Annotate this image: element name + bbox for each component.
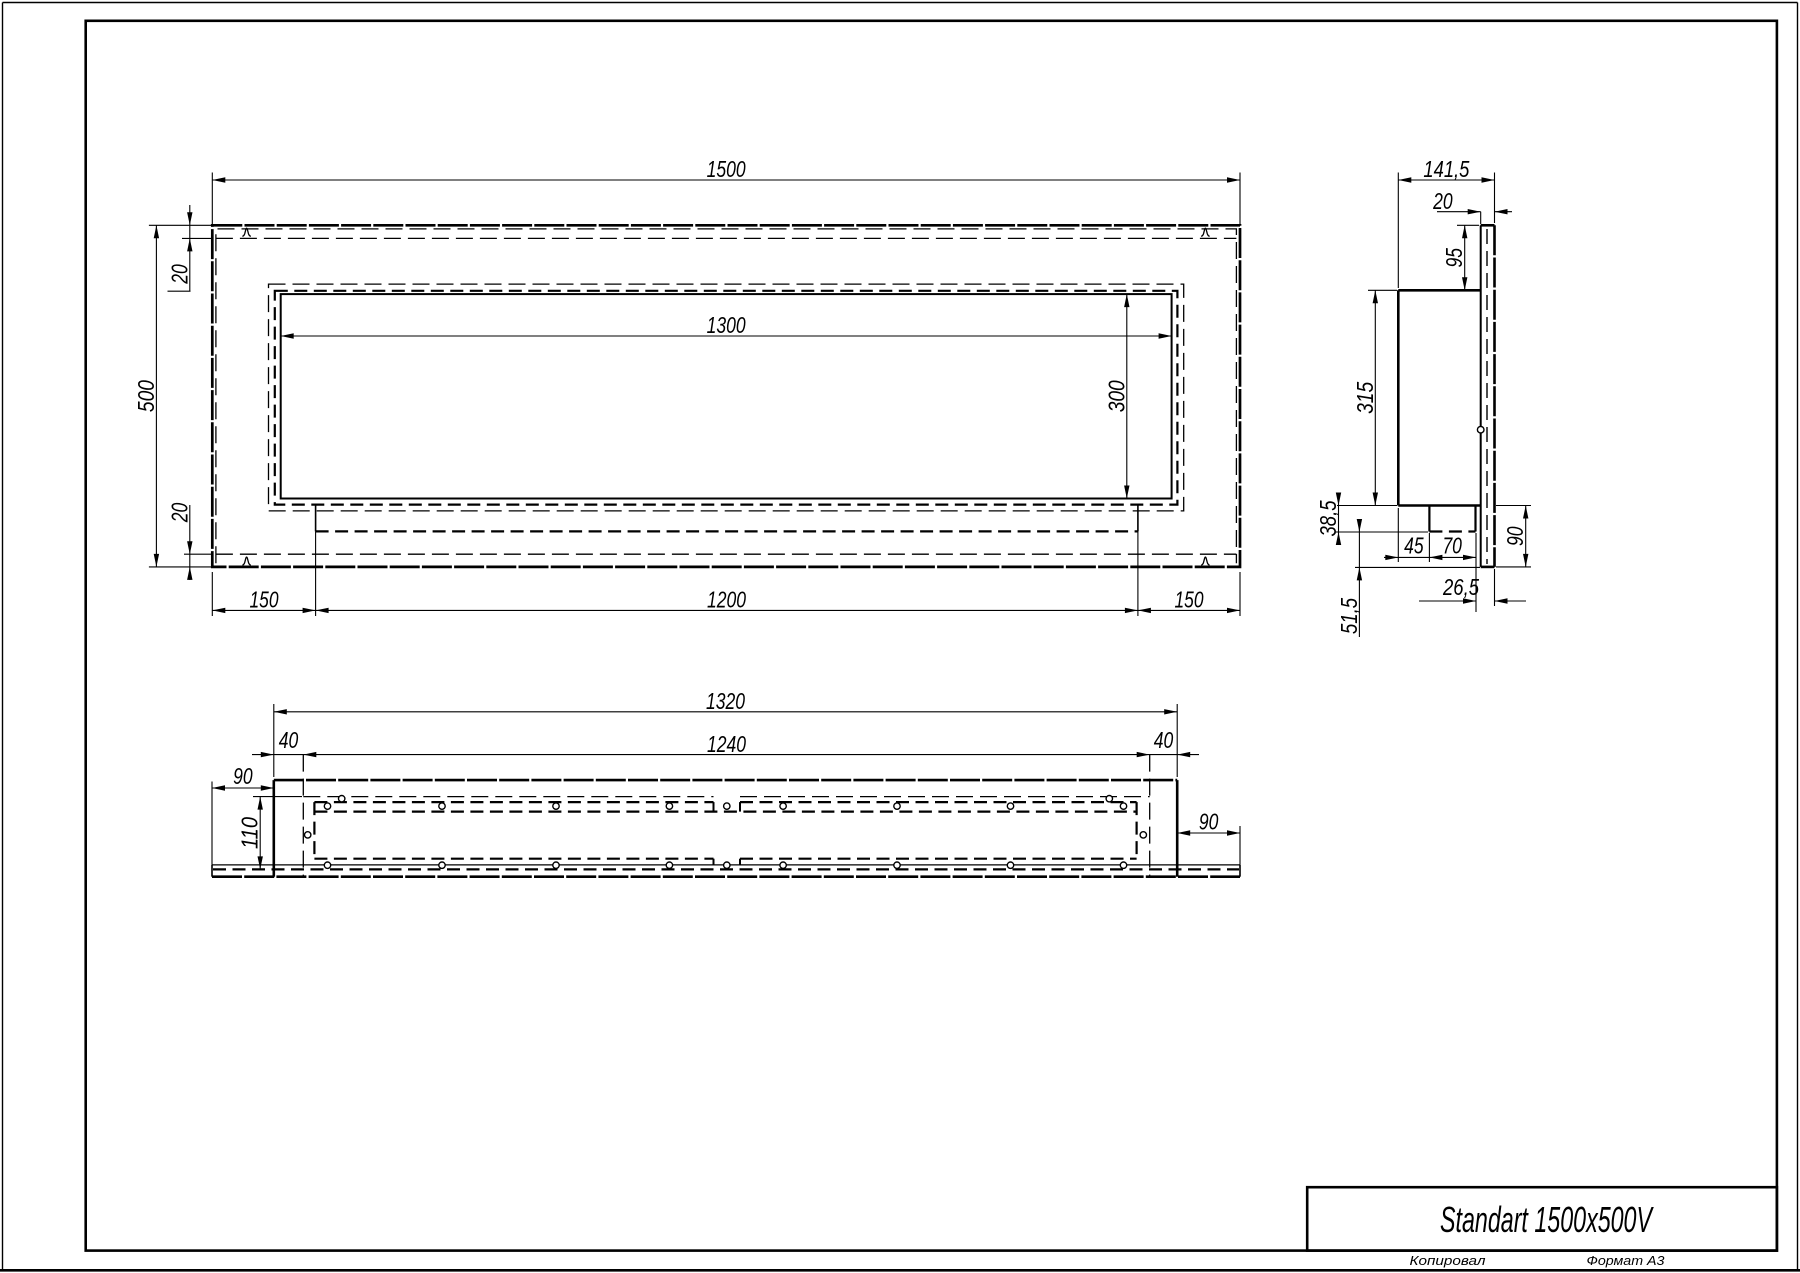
svg-text:1300: 1300: [707, 312, 746, 338]
svg-text:1320: 1320: [706, 688, 745, 714]
svg-text:20: 20: [166, 264, 192, 284]
svg-text:300: 300: [1103, 380, 1129, 412]
svg-text:70: 70: [1442, 533, 1462, 559]
svg-text:20: 20: [1432, 188, 1452, 214]
svg-text:20: 20: [166, 503, 192, 523]
svg-text:40: 40: [1154, 727, 1174, 753]
svg-text:150: 150: [250, 587, 279, 613]
svg-text:38,5: 38,5: [1315, 500, 1341, 536]
svg-text:110: 110: [237, 817, 263, 849]
svg-text:90: 90: [1199, 809, 1219, 835]
svg-text:500: 500: [133, 380, 159, 412]
svg-text:1200: 1200: [707, 587, 746, 613]
svg-text:Standart 1500x500V: Standart 1500x500V: [1440, 1199, 1654, 1240]
svg-text:90: 90: [233, 763, 253, 789]
svg-text:90: 90: [1502, 526, 1528, 546]
svg-text:45: 45: [1404, 533, 1424, 559]
svg-text:26,5: 26,5: [1442, 574, 1479, 600]
svg-text:40: 40: [279, 727, 299, 753]
svg-text:51,5: 51,5: [1336, 598, 1362, 634]
svg-text:95: 95: [1441, 248, 1467, 268]
svg-text:150: 150: [1175, 587, 1204, 613]
svg-text:Формат А3: Формат А3: [1587, 1254, 1665, 1268]
svg-text:1240: 1240: [707, 731, 746, 757]
svg-text:Копировал: Копировал: [1410, 1254, 1486, 1268]
svg-text:141,5: 141,5: [1423, 156, 1469, 182]
svg-text:315: 315: [1352, 382, 1378, 414]
svg-text:1500: 1500: [707, 156, 746, 182]
